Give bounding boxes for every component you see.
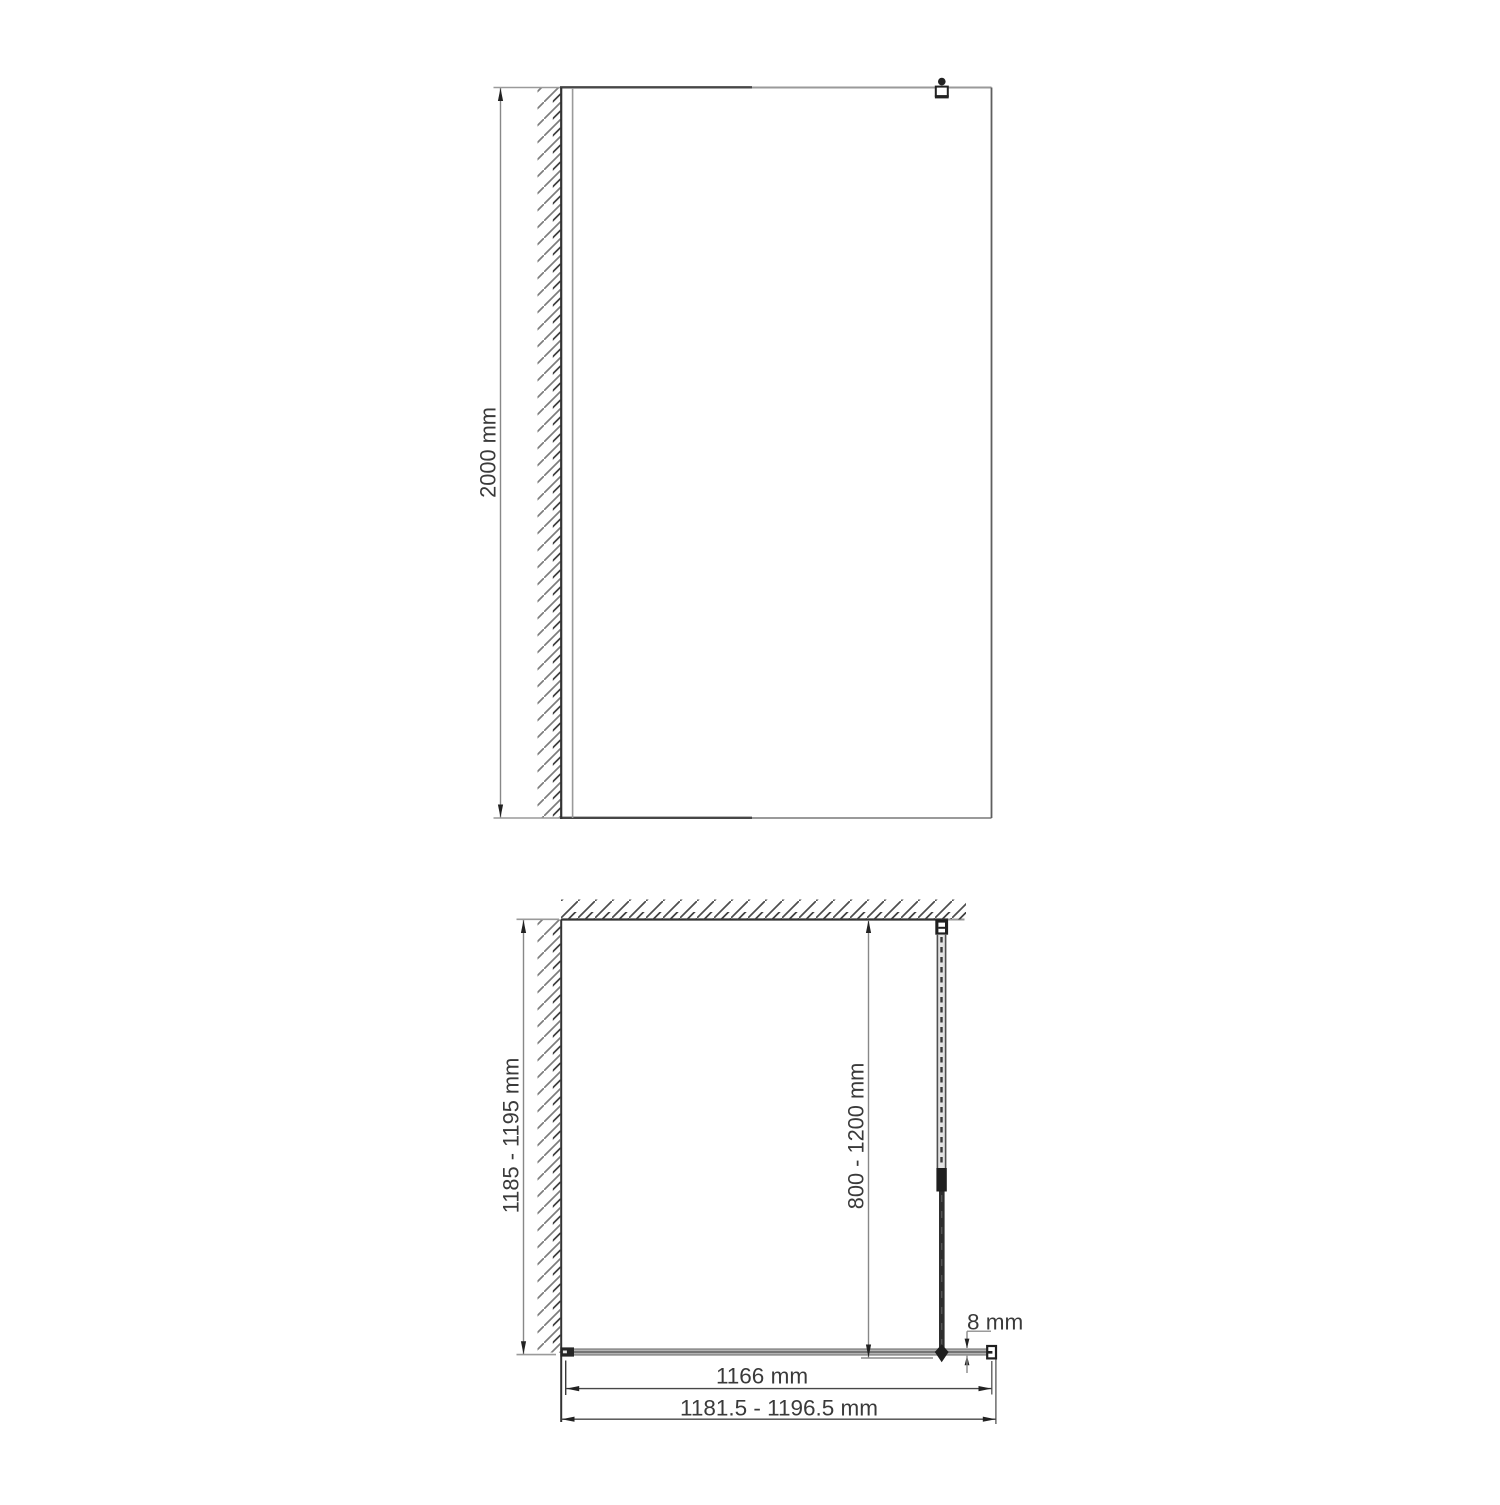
svg-text:800 - 1200 mm: 800 - 1200 mm	[844, 1063, 869, 1210]
svg-text:1181.5 - 1196.5 mm: 1181.5 - 1196.5 mm	[680, 1396, 878, 1421]
svg-text:1185 - 1195 mm: 1185 - 1195 mm	[499, 1058, 524, 1213]
svg-text:8 mm: 8 mm	[967, 1310, 1023, 1335]
svg-text:1166 mm: 1166 mm	[716, 1364, 808, 1389]
svg-text:2000 mm: 2000 mm	[476, 407, 501, 498]
